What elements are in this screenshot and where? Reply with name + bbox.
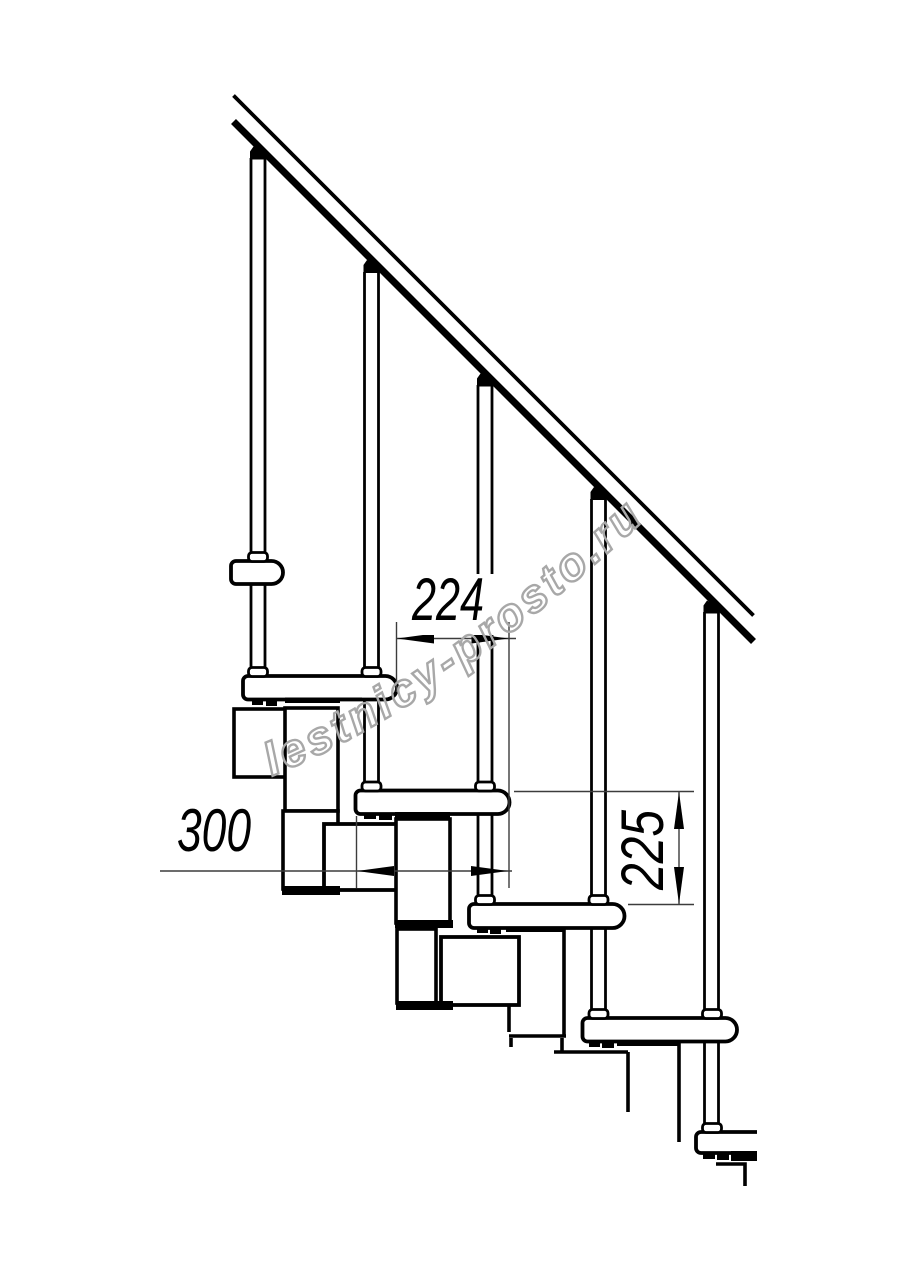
svg-text:300: 300 [177, 797, 251, 864]
svg-text:225: 225 [609, 809, 676, 890]
